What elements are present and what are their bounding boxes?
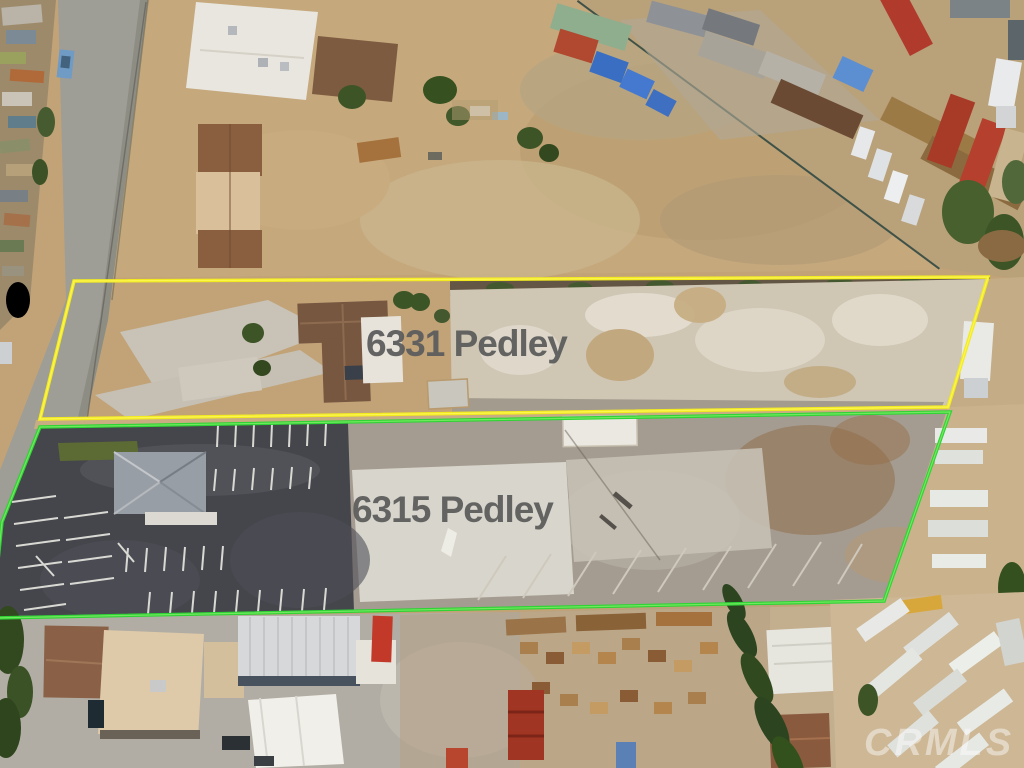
tree [517, 127, 543, 149]
car [0, 342, 12, 364]
building [238, 616, 360, 680]
parcel-label-6315: 6315 Pedley [352, 491, 553, 528]
aerial-listing-photo: 6331 Pedley 6315 Pedley CRMLS [0, 0, 1024, 768]
concrete-pad [352, 462, 574, 602]
red-truck [371, 616, 393, 663]
tree [423, 76, 457, 104]
tree [410, 293, 430, 311]
tree [37, 107, 55, 137]
red-racks [508, 690, 544, 760]
tree [858, 684, 878, 716]
truck [928, 520, 988, 537]
car [222, 736, 250, 750]
tree [539, 144, 559, 162]
tree [253, 360, 271, 376]
tree [338, 85, 366, 109]
shed [427, 379, 468, 409]
tree [242, 323, 264, 343]
truck [935, 450, 983, 464]
car [88, 700, 104, 728]
truck [932, 554, 986, 568]
truck [930, 490, 988, 507]
walkway [145, 512, 217, 525]
aerial-photo-scene [0, 0, 1024, 768]
car [254, 756, 274, 766]
tree [32, 159, 48, 185]
crmls-watermark: CRMLS [864, 724, 1014, 762]
tree [434, 309, 450, 323]
parcel-label-6331: 6331 Pedley [366, 325, 567, 362]
